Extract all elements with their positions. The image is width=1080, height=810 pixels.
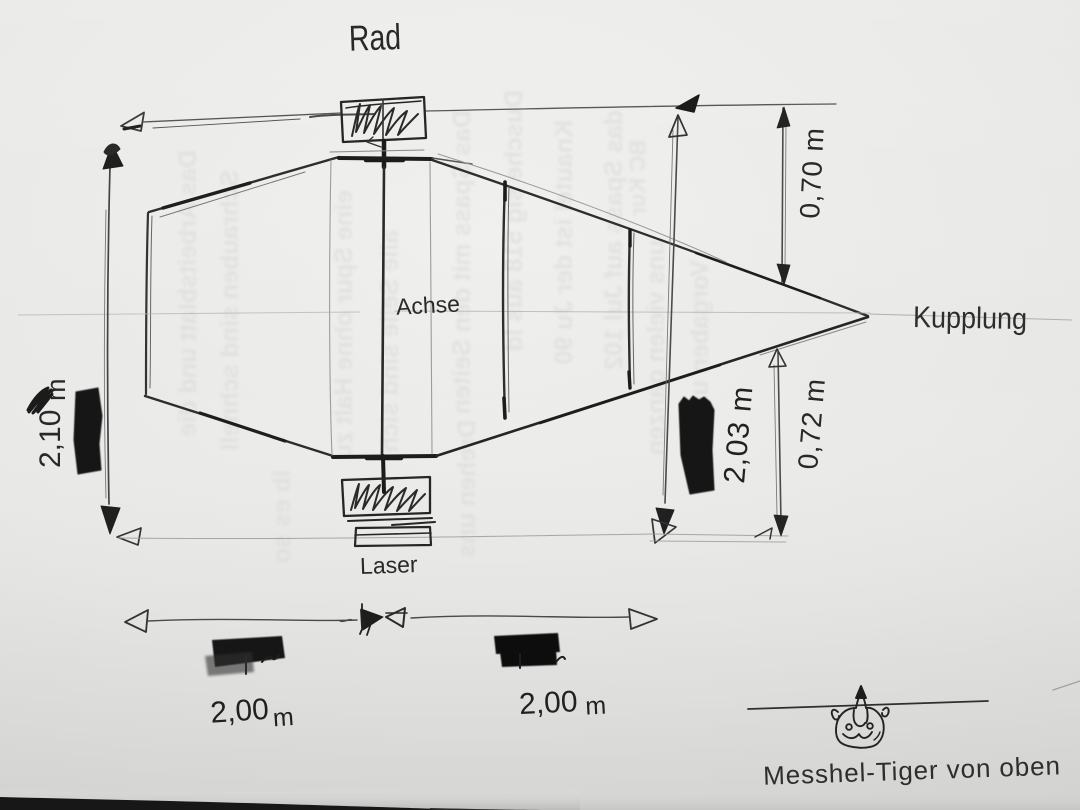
svg-text:Schrauben sind schnell: Schrauben sind schnell: [216, 170, 244, 451]
svg-text:lb es so: lb es so: [268, 470, 296, 563]
svg-text:2,10: 2,10: [34, 410, 67, 468]
svg-text:Achse: Achse: [395, 290, 460, 319]
svg-text:Rad: Rad: [348, 16, 401, 59]
svg-text:BC Kur: BC Kur: [625, 140, 650, 216]
svg-text:2,00: 2,00: [518, 685, 578, 721]
svg-text:Knautel ist der Ju 90: Knautel ist der Ju 90: [550, 120, 578, 365]
svg-text:Das Arbeitsblatt und die: Das Arbeitsblatt und die: [174, 150, 202, 437]
svg-text:uns vielen ganzen: uns vielen ganzen: [642, 240, 670, 455]
svg-text:m: m: [272, 703, 295, 732]
svg-text:m: m: [585, 692, 607, 721]
svg-text:das Spass auf Jul 102: das Spass auf Jul 102: [600, 110, 628, 370]
svg-text:alle Seile sind sich: alle Seile sind sich: [376, 230, 404, 452]
svg-text:Laser: Laser: [360, 551, 419, 579]
svg-text:Kupplung: Kupplung: [913, 301, 1028, 336]
svg-text:Das Spass mit den Seiten: Das Spass mit den Seiten: [448, 110, 476, 414]
svg-text:0,70 m: 0,70 m: [794, 126, 830, 219]
svg-text:eine Spur ohne Halt zu: eine Spur ohne Halt zu: [330, 190, 358, 459]
svg-text:2,00: 2,00: [209, 693, 270, 730]
